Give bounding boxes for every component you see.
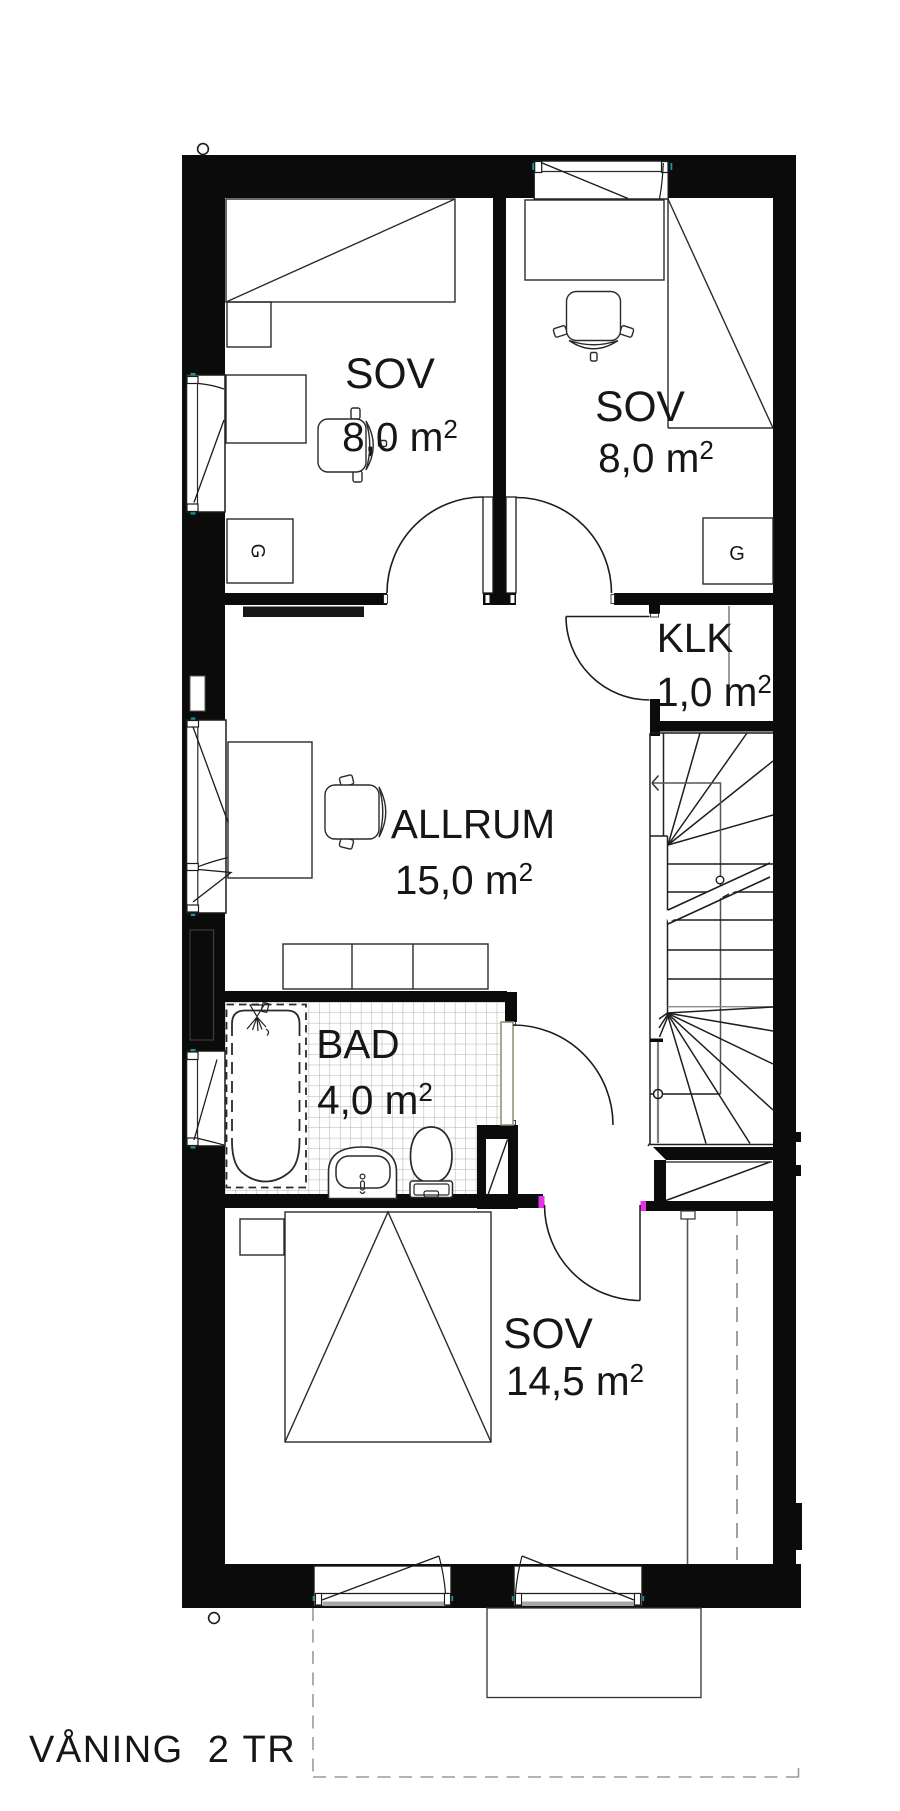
svg-text:15,0 m2: 15,0 m2 — [395, 857, 533, 903]
svg-text:SOV: SOV — [345, 351, 435, 398]
svg-text:KLK: KLK — [657, 615, 734, 661]
svg-text:8,0 m2: 8,0 m2 — [342, 414, 458, 460]
svg-text:ALLRUM: ALLRUM — [391, 801, 555, 847]
svg-text:14,5 m2: 14,5 m2 — [506, 1358, 644, 1404]
svg-text:BAD: BAD — [316, 1021, 399, 1067]
svg-text:SOV: SOV — [503, 1311, 593, 1358]
svg-text:VÅNING 2 TR: VÅNING 2 TR — [29, 1727, 296, 1771]
svg-text:G: G — [729, 543, 745, 565]
svg-text:G: G — [247, 544, 268, 559]
svg-text:8,0 m2: 8,0 m2 — [598, 435, 714, 481]
svg-text:4,0 m2: 4,0 m2 — [317, 1077, 433, 1123]
svg-text:1,0 m2: 1,0 m2 — [656, 669, 772, 715]
svg-text:SOV: SOV — [595, 384, 685, 431]
